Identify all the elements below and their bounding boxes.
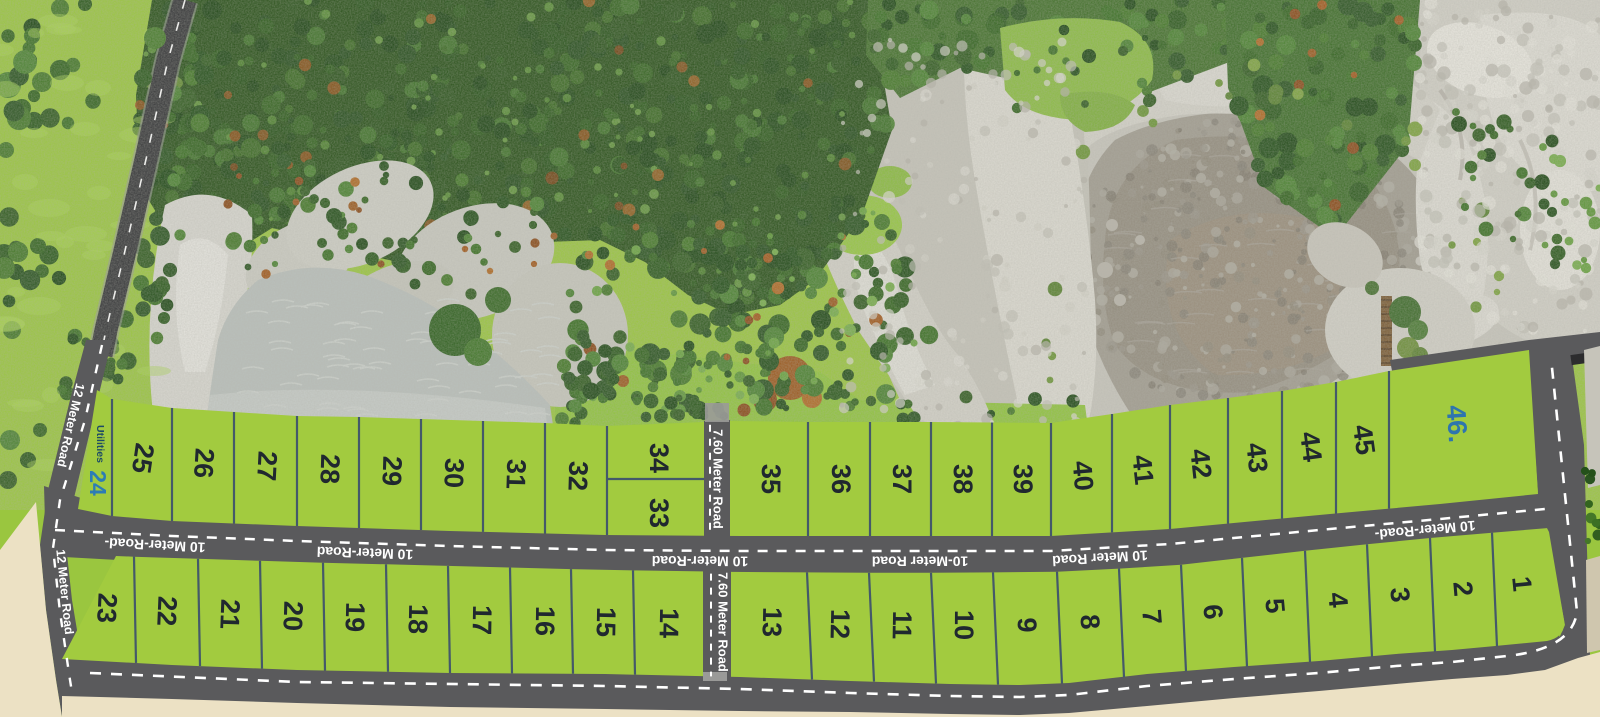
svg-text:4: 4 [1322,591,1353,609]
svg-text:33: 33 [644,498,674,528]
svg-text:2: 2 [1447,580,1478,598]
svg-text:13: 13 [757,607,788,638]
svg-text:38: 38 [948,464,978,494]
svg-text:7: 7 [1136,608,1167,625]
svg-text:28: 28 [314,454,345,485]
svg-text:40: 40 [1067,460,1100,493]
svg-text:45: 45 [1347,423,1381,457]
svg-text:31: 31 [500,459,531,490]
svg-text:19: 19 [340,602,371,633]
svg-text:6: 6 [1197,603,1228,621]
svg-text:10 Meter-Road: 10 Meter-Road [316,544,413,563]
svg-text:27: 27 [251,450,282,481]
svg-text:9: 9 [1012,617,1042,633]
svg-text:10-Meter Road: 10-Meter Road [872,553,968,569]
svg-text:37: 37 [887,464,917,494]
svg-text:3: 3 [1384,586,1415,604]
svg-text:25: 25 [126,441,160,475]
svg-text:22: 22 [151,595,182,626]
svg-text:11: 11 [887,611,917,640]
svg-text:32: 32 [562,461,593,492]
svg-text:23: 23 [91,592,122,623]
svg-text:8: 8 [1074,613,1105,630]
svg-text:36: 36 [826,464,856,494]
svg-text:34: 34 [644,443,674,473]
svg-text:5: 5 [1259,597,1290,615]
svg-text:46.: 46. [1441,404,1474,444]
svg-text:7.60 Meter Road: 7.60 Meter Road [716,572,731,672]
svg-text:42: 42 [1184,447,1217,480]
svg-text:39: 39 [1008,464,1038,494]
svg-text:14: 14 [654,608,685,639]
svg-text:20: 20 [277,601,308,632]
svg-text:43: 43 [1240,441,1273,474]
svg-text:12: 12 [825,609,856,640]
svg-text:10 Meter-Road: 10 Meter-Road [652,553,749,570]
svg-text:17: 17 [467,605,498,636]
svg-text:24: 24 [85,470,111,496]
svg-text:29: 29 [376,456,407,487]
svg-text:10: 10 [949,610,979,640]
svg-text:26: 26 [188,447,220,479]
svg-text:7.60 Meter Road: 7.60 Meter Road [711,429,726,529]
svg-text:30: 30 [438,458,469,489]
svg-text:1: 1 [1506,575,1537,593]
svg-text:41: 41 [1126,453,1159,486]
svg-text:Utilities: Utilities [94,425,106,463]
svg-text:21: 21 [214,599,245,630]
svg-text:35: 35 [756,464,786,494]
svg-text:15: 15 [591,607,622,638]
svg-text:44: 44 [1294,430,1328,464]
svg-text:16: 16 [530,606,560,637]
svg-text:18: 18 [403,604,434,635]
